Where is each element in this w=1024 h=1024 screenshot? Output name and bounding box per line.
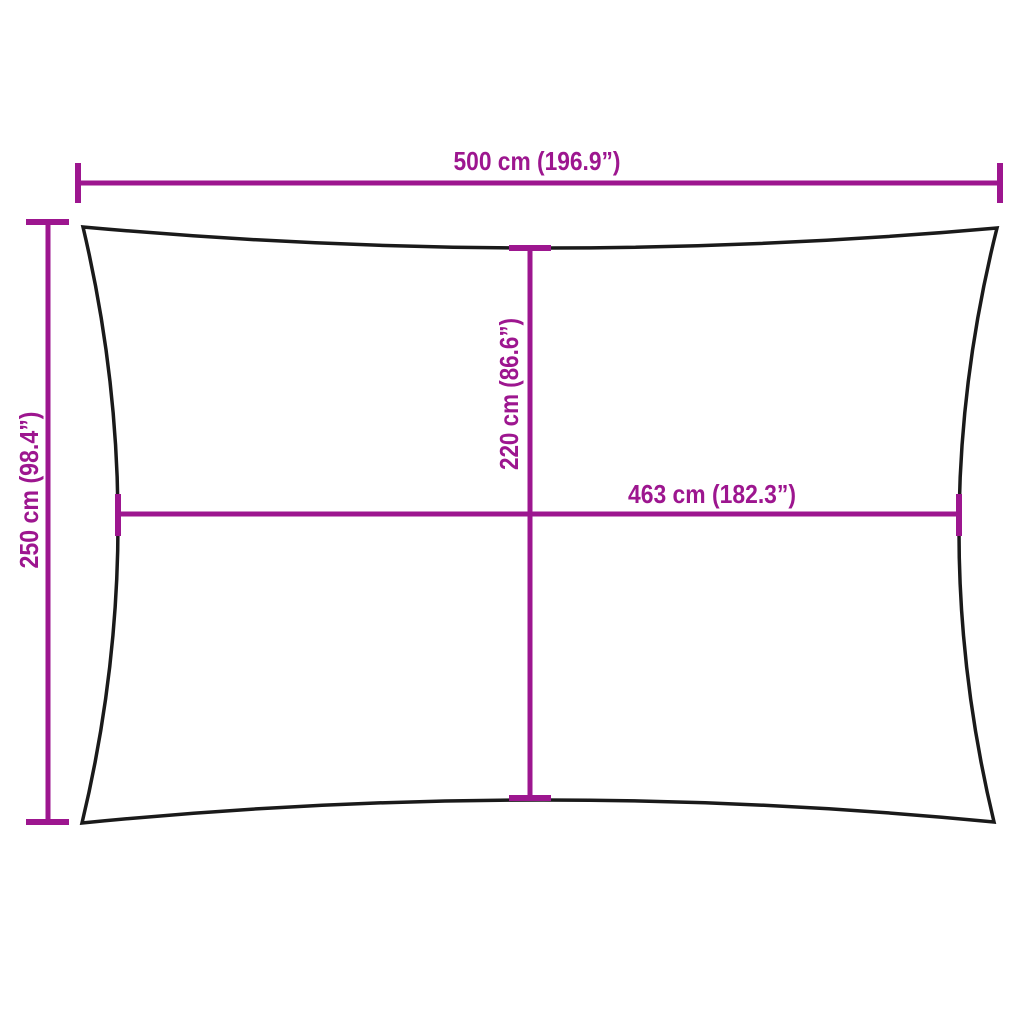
height-dimension-label: 250 cm (98.4”) <box>14 412 44 569</box>
dimension-labels: 500 cm (196.9”) 250 cm (98.4”) 220 cm (8… <box>14 146 796 569</box>
sail-outline <box>82 227 997 823</box>
width-dimension-label: 500 cm (196.9”) <box>454 146 621 176</box>
diagram-canvas: 500 cm (196.9”) 250 cm (98.4”) 220 cm (8… <box>0 0 1024 1024</box>
inner-height-dimension-label: 220 cm (86.6”) <box>494 318 524 470</box>
dimension-lines <box>26 163 1000 822</box>
dimension-diagram: 500 cm (196.9”) 250 cm (98.4”) 220 cm (8… <box>0 0 1024 1024</box>
inner-width-dimension-label: 463 cm (182.3”) <box>628 479 796 509</box>
